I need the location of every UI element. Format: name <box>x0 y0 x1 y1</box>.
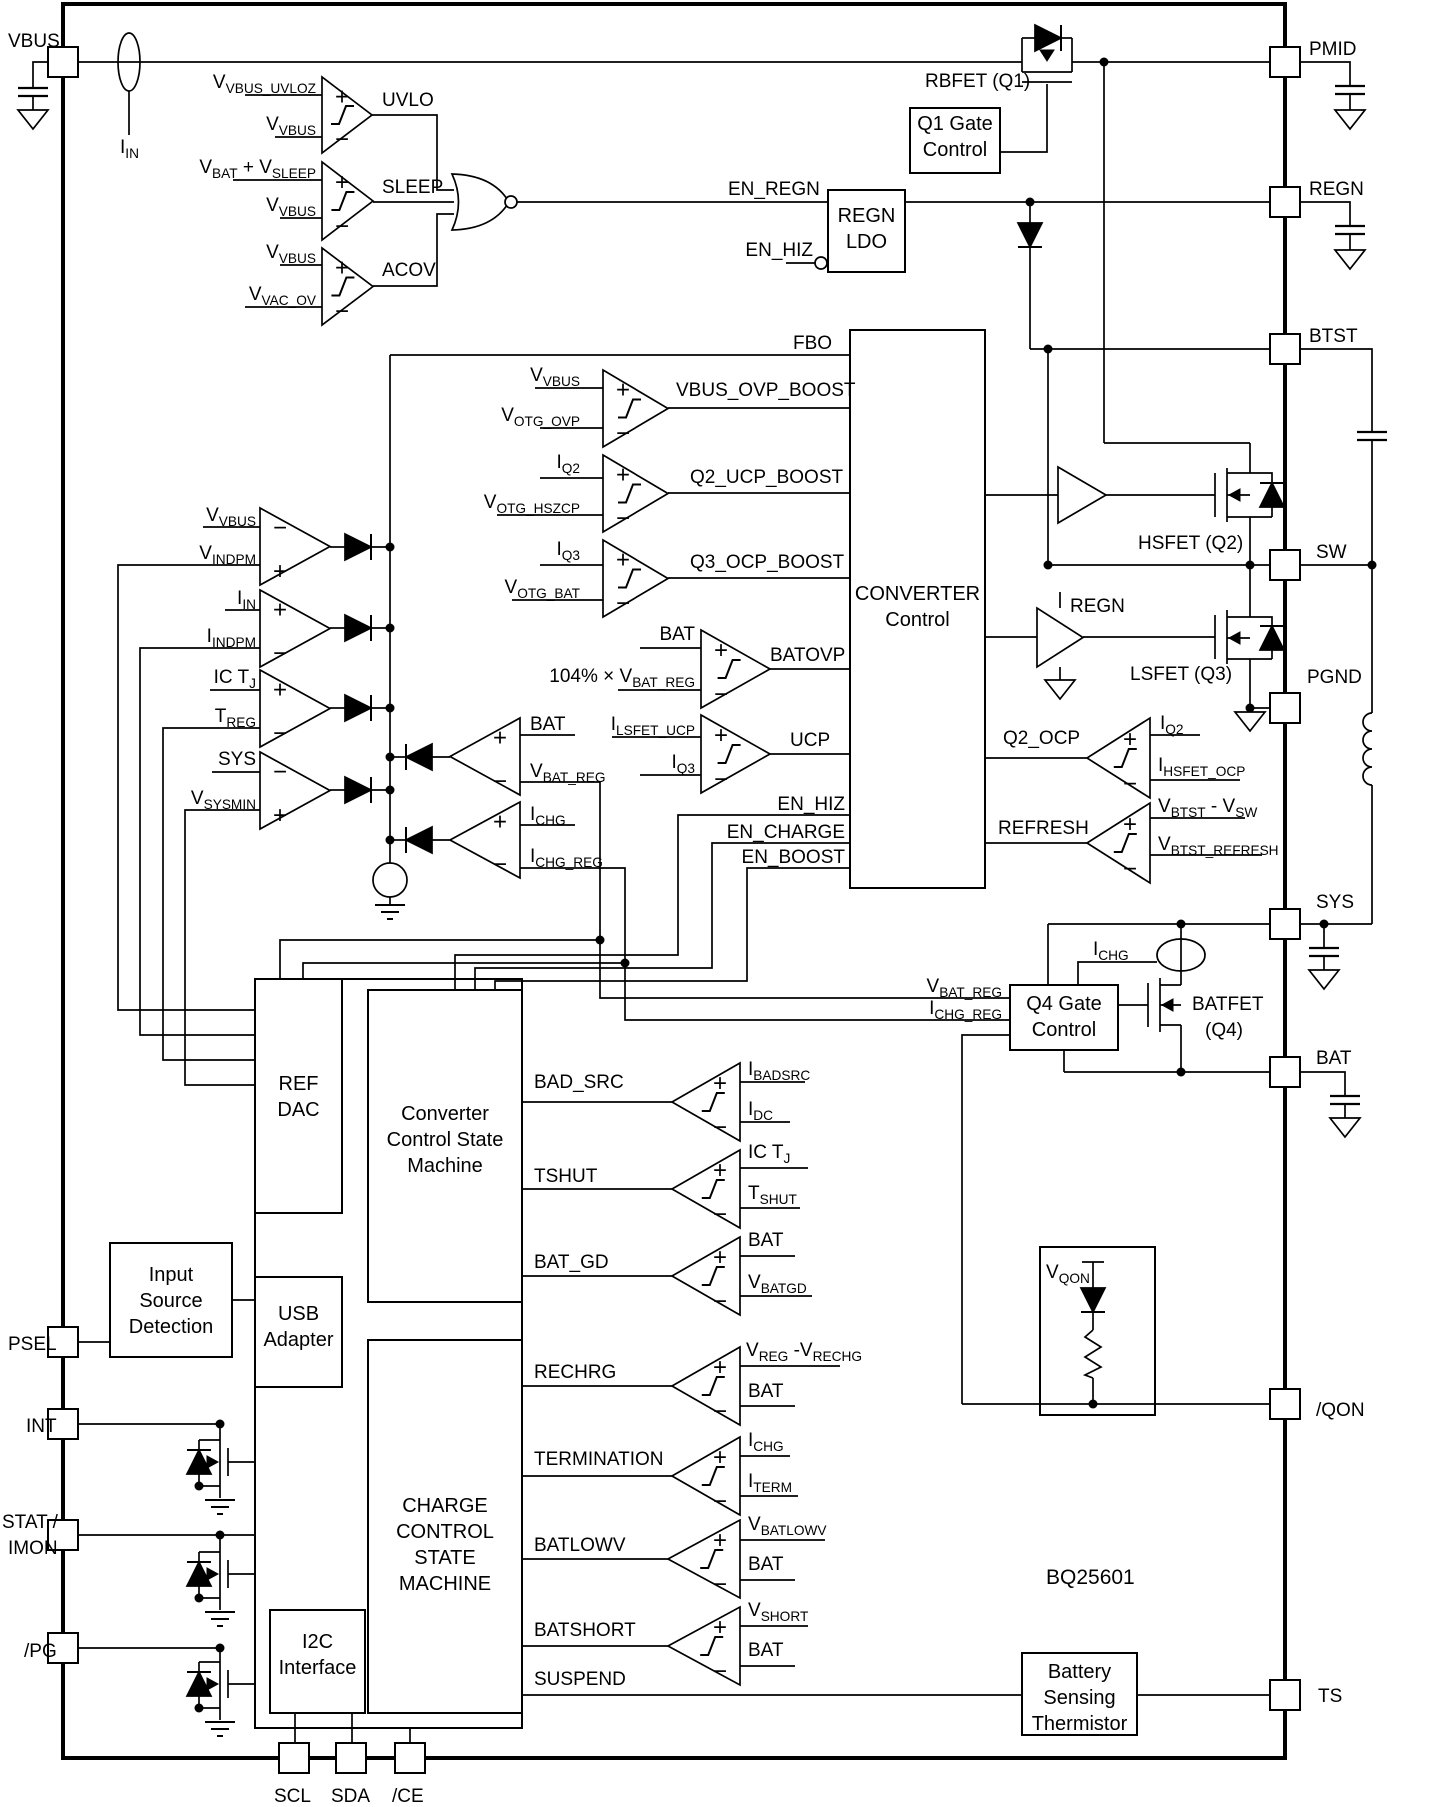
label-ic-tj: IC TJ <box>748 1142 790 1166</box>
rechrg-comparator <box>672 1347 740 1425</box>
pin-sw <box>1270 550 1300 580</box>
block-charge-control-state-machine-label: CONTROL <box>396 1521 494 1543</box>
current-source <box>373 863 407 897</box>
q2-ucp-boost-comparator-minus-sign: − <box>616 505 630 532</box>
block-q4-gate-control-label: Control <box>1032 1019 1096 1041</box>
label-ibadsrc: IBADSRC <box>748 1059 810 1083</box>
diode <box>406 744 432 770</box>
block-converter-control-label: Control <box>885 609 949 631</box>
batlowv-comparator <box>668 1520 740 1598</box>
junction-dot <box>1100 58 1109 67</box>
block-i2c-interface-label: Interface <box>279 1657 357 1679</box>
wire <box>280 940 600 979</box>
label-bat: BAT <box>659 624 695 645</box>
arrow <box>207 1456 218 1468</box>
label-vindpm: VINDPM <box>199 543 256 567</box>
q2-ocp-comparator <box>1087 718 1150 798</box>
block-usb-adapter-label: Adapter <box>263 1329 333 1351</box>
pin-sys <box>1270 909 1300 939</box>
inverter-bubble <box>815 257 827 269</box>
vbus-ovp-boost-comparator-minus-sign: − <box>616 420 630 447</box>
ground-triangle <box>1309 970 1339 989</box>
block-usb-adapter-label: USB <box>278 1303 319 1325</box>
ucp-comparator-minus-sign: − <box>714 766 728 793</box>
termination-comparator <box>672 1437 740 1515</box>
label-psel: PSEL <box>8 1334 57 1355</box>
label-acov: ACOV <box>382 260 436 281</box>
wire <box>1000 84 1047 152</box>
wire <box>1250 473 1272 483</box>
wire <box>33 62 47 88</box>
label-iq3: IQ3 <box>671 752 695 776</box>
refresh-comparator <box>1087 803 1150 883</box>
junction-dot <box>1177 1068 1186 1077</box>
junction-dot <box>386 753 395 762</box>
diagram-canvas: Q1 GateControlREGNLDOCONVERTERControlQ4 … <box>0 0 1429 1807</box>
label-q4: (Q4) <box>1205 1020 1243 1041</box>
charge-current-amp-minus-sign: − <box>493 851 507 878</box>
junction-dot <box>1089 1400 1098 1409</box>
iindpm-amp-plus-sign: + <box>273 597 287 624</box>
acov-comparator-minus-sign: − <box>335 298 349 325</box>
bad-src-comparator-minus-sign: − <box>713 1114 727 1141</box>
tshut-comparator-minus-sign: − <box>713 1201 727 1228</box>
tshut-comparator <box>672 1150 740 1228</box>
label-treg: TREG <box>215 706 256 730</box>
pin--qon <box>1270 1389 1300 1419</box>
label-fbo: FBO <box>793 333 832 354</box>
label-rbfet-q1: RBFET (Q1) <box>925 71 1030 92</box>
label-vvbus: VVBUS <box>530 365 580 389</box>
label-batshort: BATSHORT <box>534 1620 636 1641</box>
label-ihsfet-ocp: IHSFET_OCP <box>1158 755 1245 779</box>
label-vbat-vsleep: VBAT + VSLEEP <box>199 157 316 181</box>
q2-ocp-comparator-minus-sign: − <box>1123 771 1137 798</box>
junction-dot <box>621 959 630 968</box>
label-bad-src: BAD_SRC <box>534 1072 624 1093</box>
label-pmid: PMID <box>1309 39 1357 60</box>
label-104-vbat-reg: 104% × VBAT_REG <box>549 666 695 690</box>
label-ucp: UCP <box>790 730 830 751</box>
label-en-hiz: EN_HIZ <box>745 240 813 261</box>
junction-dot <box>386 836 395 845</box>
block-charge-control-state-machine-label: MACHINE <box>399 1573 491 1595</box>
ucp-comparator <box>701 715 770 793</box>
label-sw: SW <box>1316 542 1347 563</box>
vindpm-amp <box>260 508 330 585</box>
label-idc: IDC <box>748 1099 773 1123</box>
iindpm-amp <box>260 590 330 667</box>
label-ce: /CE <box>392 1786 424 1807</box>
battery-voltage-amp-plus-sign: + <box>493 725 507 752</box>
junction-dot <box>216 1531 225 1540</box>
wire <box>1250 617 1272 626</box>
label-iin: IIN <box>120 137 139 161</box>
diode <box>1260 483 1284 507</box>
label-vvbus: VVBUS <box>266 242 316 266</box>
label-qon: /QON <box>1316 1400 1365 1421</box>
q3-ocp-boost-comparator-plus-sign: + <box>616 547 630 574</box>
diode <box>345 777 371 803</box>
block-ref-dac-label: REF <box>279 1073 319 1095</box>
label-en-boost: EN_BOOST <box>742 847 846 868</box>
label-vbtst-vsw: VBTST - VSW <box>1158 796 1257 820</box>
label-pgnd: PGND <box>1307 667 1362 688</box>
vbus-ovp-boost-comparator-plus-sign: + <box>616 377 630 404</box>
label-sys: SYS <box>1316 892 1354 913</box>
label-bat: BAT <box>530 714 566 735</box>
label-vbtst-refresh: VBTST_REFRESH <box>1158 834 1279 858</box>
thermal-amp <box>260 670 330 747</box>
sleep-comparator-minus-sign: − <box>335 213 349 240</box>
ground-triangle <box>1335 110 1365 129</box>
termination-comparator-minus-sign: − <box>713 1488 727 1515</box>
bat-gd-comparator <box>672 1237 740 1315</box>
label-batlowv: BATLOWV <box>534 1535 626 1556</box>
thermal-amp-minus-sign: − <box>273 720 287 747</box>
block-q1-gate-control-label: Control <box>923 139 987 161</box>
pin-btst <box>1270 334 1300 364</box>
label-iq2: IQ2 <box>556 452 580 476</box>
arrow <box>1229 632 1240 644</box>
refresh-comparator-minus-sign: − <box>1123 856 1137 883</box>
label-q2-ucp-boost: Q2_UCP_BOOST <box>690 467 843 488</box>
label-vbus-ovp-boost: VBUS_OVP_BOOST <box>676 380 856 401</box>
pin-bat <box>1270 1057 1300 1087</box>
ground-triangle <box>1330 1118 1360 1137</box>
ucp-comparator-plus-sign: + <box>714 722 728 749</box>
thermal-amp-plus-sign: + <box>273 677 287 704</box>
bat-gd-comparator-minus-sign: − <box>713 1288 727 1315</box>
wire <box>303 963 625 979</box>
block-regn-ldo-label: REGN <box>838 205 896 227</box>
arrow <box>1040 50 1054 61</box>
junction-dot <box>1368 561 1377 570</box>
junction-dot <box>386 786 395 795</box>
diode <box>1035 25 1061 51</box>
label-rechrg: RECHRG <box>534 1362 616 1383</box>
label-en-hiz: EN_HIZ <box>777 794 845 815</box>
label-lsfet-q3: LSFET (Q3) <box>1130 664 1232 685</box>
block-ref-dac-label: DAC <box>277 1099 319 1121</box>
arrow <box>207 1678 218 1690</box>
label-vvac-ov: VVAC_OV <box>249 284 317 308</box>
label-vbatgd: VBATGD <box>748 1272 807 1296</box>
wire <box>962 1035 1010 1404</box>
junction-dot <box>1044 561 1053 570</box>
block-q4-gate-control-label: Q4 Gate <box>1026 993 1102 1015</box>
hsfet-driver <box>1058 467 1106 523</box>
junction-dot <box>1246 561 1255 570</box>
label-vvbus-uvloz: VVBUS_UVLOZ <box>213 72 316 96</box>
label-vvbus: VVBUS <box>266 114 316 138</box>
label-ichg: ICHG <box>1093 939 1129 963</box>
diode <box>345 695 371 721</box>
label-tshut: TSHUT <box>534 1166 598 1187</box>
wire <box>1301 62 1350 86</box>
label-sys: SYS <box>218 749 256 770</box>
label-iin: IIN <box>237 588 256 612</box>
iindpm-amp-minus-sign: − <box>273 640 287 667</box>
inductor-coil <box>1363 713 1372 785</box>
rechrg-comparator-minus-sign: − <box>713 1398 727 1425</box>
ground-triangle <box>1235 712 1265 731</box>
batovp-comparator <box>701 630 770 708</box>
label-bat: BAT <box>748 1381 784 1402</box>
pin--ce <box>395 1743 425 1773</box>
pin-scl <box>279 1743 309 1773</box>
vindpm-amp-plus-sign: − <box>273 515 287 542</box>
label-vbatlowv: VBATLOWV <box>748 1514 827 1538</box>
label-votg-hszcp: VOTG_HSZCP <box>484 492 580 516</box>
block-charge-control-state-machine-label: STATE <box>414 1547 475 1569</box>
label-vvbus: VVBUS <box>206 505 256 529</box>
label-refresh: REFRESH <box>998 818 1089 839</box>
label-ts: TS <box>1318 1686 1342 1707</box>
arrow <box>1229 489 1240 501</box>
label-stat: STAT / <box>2 1512 59 1533</box>
label-vreg-vrechg: VREG -VRECHG <box>746 1340 862 1364</box>
label-ic-tj: IC TJ <box>214 667 256 691</box>
pin-ts <box>1270 1680 1300 1710</box>
label-tshut: TSHUT <box>748 1183 797 1207</box>
block-i2c-interface-label: I2C <box>302 1631 333 1653</box>
wire <box>1301 349 1372 432</box>
sysmin-amp-plus-sign: − <box>273 759 287 786</box>
label-vsysmin: VSYSMIN <box>191 788 256 812</box>
chip-part-number: BQ25601 <box>1046 1566 1135 1590</box>
label-bat: BAT <box>1316 1048 1352 1069</box>
label-vbat-reg: VBAT_REG <box>927 976 1003 1000</box>
junction-dot <box>216 1420 225 1429</box>
pin-sda <box>336 1743 366 1773</box>
q3-ocp-boost-comparator <box>603 540 668 617</box>
label-bat: BAT <box>748 1230 784 1251</box>
label-termination: TERMINATION <box>534 1449 663 1470</box>
block-converter-control-state-machine-label: Control State <box>387 1129 504 1151</box>
label-votg-ovp: VOTG_OVP <box>501 405 580 429</box>
label-ichg: ICHG <box>748 1430 784 1454</box>
vindpm-amp-minus-sign: + <box>273 558 287 585</box>
junction-dot <box>195 1482 204 1491</box>
block-charge-control-state-machine-label: CHARGE <box>402 1495 488 1517</box>
pin-regn <box>1270 187 1300 217</box>
junction-dot <box>216 1644 225 1653</box>
block-battery-sensing-thermistor-label: Battery <box>1048 1661 1111 1683</box>
label-iq3: IQ3 <box>556 539 580 563</box>
label-ichg-reg: ICHG_REG <box>530 846 603 870</box>
block-converter-control-state-machine-label: Converter <box>401 1103 489 1125</box>
label-scl: SCL <box>274 1786 311 1807</box>
sysmin-amp <box>260 752 330 829</box>
label-en-regn: EN_REGN <box>728 179 820 200</box>
label-votg-bat: VOTG_BAT <box>505 577 581 601</box>
batovp-comparator-minus-sign: − <box>714 681 728 708</box>
label-batovp: BATOVP <box>770 645 845 666</box>
block-q1-gate-control-label: Q1 Gate <box>917 113 993 135</box>
ground-triangle <box>1335 250 1365 269</box>
label-imon: IMON <box>8 1538 58 1559</box>
block-input-source-detection-label: Source <box>139 1290 202 1312</box>
sysmin-amp-minus-sign: + <box>273 802 287 829</box>
charge-current-amp <box>450 802 520 878</box>
nor-gate <box>452 174 509 230</box>
label-bat-gd: BAT_GD <box>534 1252 609 1273</box>
wire <box>1078 962 1157 985</box>
pin-pmid <box>1270 47 1300 77</box>
diode <box>345 534 371 560</box>
label-bat: BAT <box>748 1554 784 1575</box>
junction-dot <box>1026 198 1035 207</box>
block-battery-sensing-thermistor-label: Thermistor <box>1032 1713 1128 1735</box>
arrow <box>1162 999 1173 1011</box>
label-vvbus: VVBUS <box>266 195 316 219</box>
label-bat: BAT <box>748 1640 784 1661</box>
bq25601-block-diagram: Q1 GateControlREGNLDOCONVERTERControlQ4 … <box>0 0 1429 1807</box>
junction-dot <box>1246 704 1255 713</box>
label-ichg: ICHG <box>530 804 566 828</box>
label-regn: REGN <box>1309 179 1364 200</box>
ground-triangle <box>1045 680 1075 699</box>
block-input-source-detection-label: Input <box>149 1264 194 1286</box>
junction-dot <box>195 1704 204 1713</box>
label-iq2: IQ2 <box>1160 713 1184 737</box>
battery-voltage-amp <box>450 718 520 795</box>
q3-ocp-boost-comparator-minus-sign: − <box>616 590 630 617</box>
batshort-comparator <box>668 1607 740 1685</box>
label-btst: BTST <box>1309 326 1358 347</box>
label-batfet: BATFET <box>1192 994 1264 1015</box>
label-ichg-reg: ICHG_REG <box>929 998 1002 1022</box>
wire <box>1301 1072 1345 1096</box>
q2-ucp-boost-comparator-plus-sign: + <box>616 462 630 489</box>
label-int: INT <box>26 1416 57 1437</box>
label-q2-ocp: Q2_OCP <box>1003 728 1080 749</box>
arrow <box>207 1568 218 1580</box>
batovp-comparator-plus-sign: + <box>714 637 728 664</box>
label-iterm: ITERM <box>748 1471 792 1495</box>
bad-src-comparator <box>672 1063 740 1141</box>
junction-dot <box>386 543 395 552</box>
label-uvlo: UVLO <box>382 90 434 111</box>
uvlo-comparator-minus-sign: − <box>335 126 349 153</box>
junction-dot <box>596 936 605 945</box>
wire <box>495 868 850 990</box>
block-converter-control-state-machine-label: Machine <box>407 1155 483 1177</box>
diode <box>406 827 432 853</box>
label-pg: /PG <box>24 1641 57 1662</box>
label-suspend: SUSPEND <box>534 1669 626 1690</box>
label-vshort: VSHORT <box>748 1600 809 1624</box>
block-ref-dac <box>255 979 342 1213</box>
vbus-ovp-boost-comparator <box>603 370 668 447</box>
junction-dot <box>1177 920 1186 929</box>
ground-triangle <box>18 110 48 129</box>
junction-dot <box>386 624 395 633</box>
block-input-source-detection-label: Detection <box>129 1316 214 1338</box>
wire <box>1301 202 1350 226</box>
battery-voltage-amp-minus-sign: − <box>493 768 507 795</box>
block-converter-control-label: CONVERTER <box>855 583 980 605</box>
q2-ucp-boost-comparator <box>603 455 668 532</box>
label-sda: SDA <box>331 1786 370 1807</box>
charge-current-amp-plus-sign: + <box>493 808 507 835</box>
label-vbus: VBUS <box>8 31 60 52</box>
label-sleep: SLEEP <box>382 177 443 198</box>
inverter-bubble <box>505 196 517 208</box>
junction-dot <box>1320 920 1329 929</box>
label-ilsfet-ucp: ILSFET_UCP <box>611 714 695 738</box>
block-battery-sensing-thermistor-label: Sensing <box>1043 1687 1115 1709</box>
block-regn-ldo-label: LDO <box>846 231 887 253</box>
diode <box>345 615 371 641</box>
junction-dot <box>195 1594 204 1603</box>
batshort-comparator-minus-sign: − <box>713 1658 727 1685</box>
diode <box>1260 626 1284 650</box>
label-en-charge: EN_CHARGE <box>727 822 845 843</box>
label-q3-ocp-boost: Q3_OCP_BOOST <box>690 552 845 573</box>
junction-dot <box>386 704 395 713</box>
label-vbat-reg: VBAT_REG <box>530 761 606 785</box>
diode <box>1018 223 1042 247</box>
ic-boundary <box>63 4 1285 1758</box>
junction-dot <box>1044 345 1053 354</box>
label-iindpm: IINDPM <box>207 626 256 650</box>
label-regn: REGN <box>1070 596 1125 617</box>
wire <box>185 810 260 1085</box>
label-hsfet-q2: HSFET (Q2) <box>1138 533 1243 554</box>
wire <box>140 648 260 1035</box>
pin-pgnd <box>1270 693 1300 723</box>
batlowv-comparator-minus-sign: − <box>713 1571 727 1598</box>
